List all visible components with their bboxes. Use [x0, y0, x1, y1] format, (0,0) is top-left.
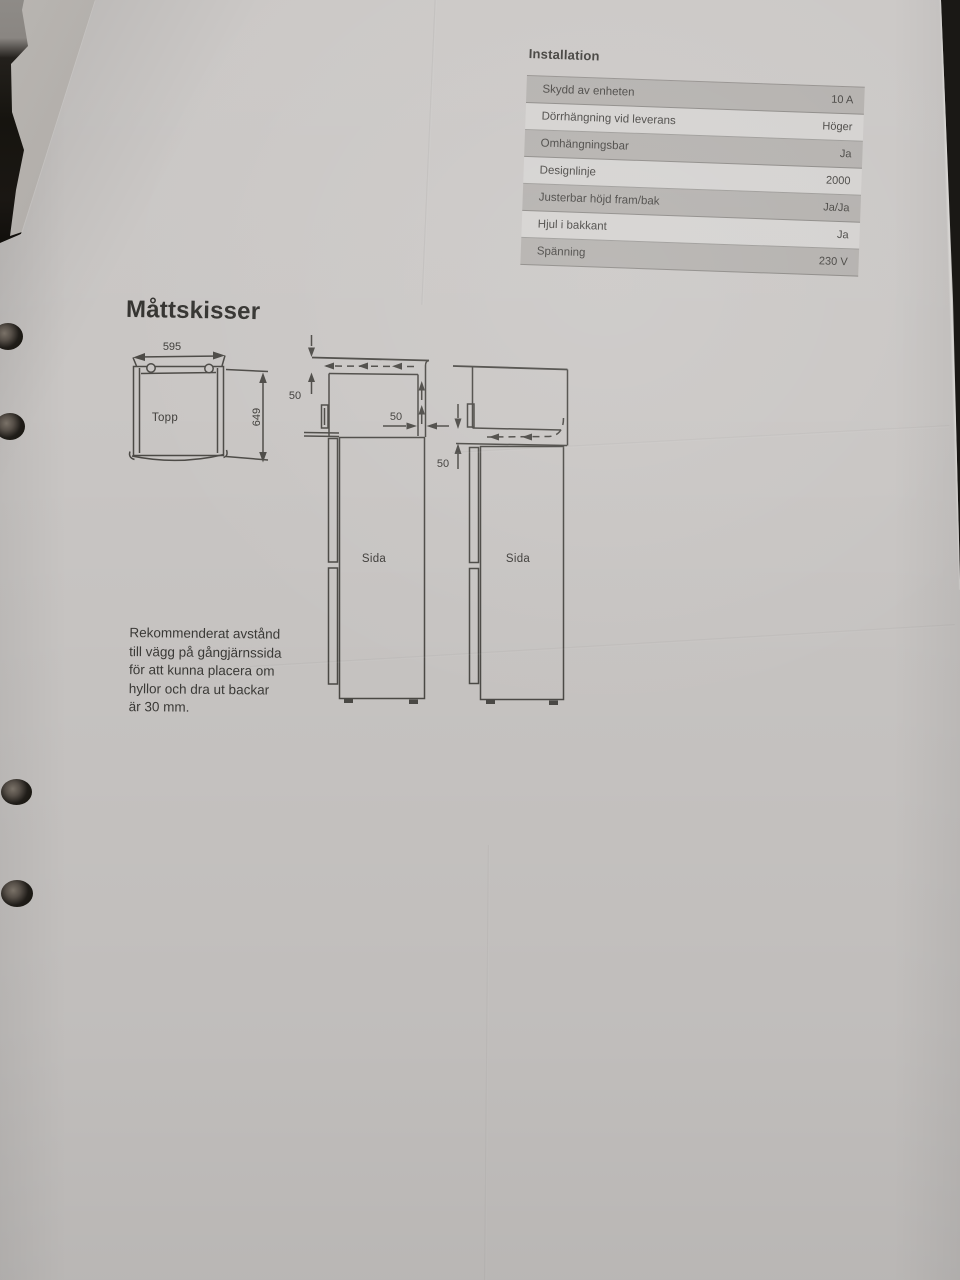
photo-frame: Installation Skydd av enheten 10 A Dörrh… — [0, 0, 960, 1280]
top-view-label: Topp — [152, 412, 178, 424]
note-line: för att kunna placera om — [129, 661, 307, 681]
note-line: Rekommenderat avstånd — [129, 624, 307, 644]
row-value: 230 V — [819, 255, 848, 268]
row-value: Ja — [837, 229, 849, 241]
row-label: Spänning — [537, 245, 586, 259]
top-view-drawing — [130, 352, 268, 463]
row-value: Ja/Ja — [823, 201, 850, 214]
paper-crease — [421, 0, 436, 305]
row-value: Ja — [840, 148, 852, 160]
row-value: 10 A — [831, 94, 853, 107]
side-view-2-label: Sida — [506, 553, 531, 565]
row-label: Justerbar höjd fram/bak — [539, 191, 660, 207]
row-value: 2000 — [826, 174, 851, 187]
top-view-width-dim: 595 — [163, 341, 181, 353]
side-view-1-rear-clearance: 50 — [390, 411, 402, 423]
note-line: är 30 mm. — [129, 698, 307, 718]
installation-table: Installation Skydd av enheten 10 A Dörrh… — [520, 46, 865, 277]
note-line: till vägg på gångjärnssida — [129, 643, 307, 663]
punch-hole — [1, 779, 32, 805]
side-view-1-top-clearance: 50 — [289, 390, 301, 402]
punch-hole — [1, 880, 33, 907]
paper-sheet: Installation Skydd av enheten 10 A Dörrh… — [0, 0, 960, 1280]
side-view-1-drawing — [304, 335, 449, 704]
row-label: Skydd av enheten — [542, 84, 634, 99]
side-view-1-label: Sida — [362, 553, 387, 565]
installation-title: Installation — [528, 46, 865, 73]
side-view-2-drawing — [453, 366, 568, 705]
clearance-note: Rekommenderat avstånd till vägg på gångj… — [129, 624, 308, 718]
row-label: Designlinje — [539, 164, 596, 178]
paper-crease — [484, 845, 490, 1280]
row-label: Dörrhängning vid leverans — [541, 111, 676, 128]
row-value: Höger — [822, 120, 852, 133]
side-view-2-top-clearance: 50 — [437, 458, 449, 470]
row-label: Hjul i bakkant — [538, 218, 607, 232]
sketches-heading: Måttskisser — [126, 296, 261, 326]
top-view-depth-dim: 649 — [251, 408, 263, 426]
installation-rows: Skydd av enheten 10 A Dörrhängning vid l… — [520, 75, 864, 277]
row-label: Omhängningsbar — [540, 138, 629, 153]
note-line: hyllor och dra ut backar — [129, 680, 307, 700]
